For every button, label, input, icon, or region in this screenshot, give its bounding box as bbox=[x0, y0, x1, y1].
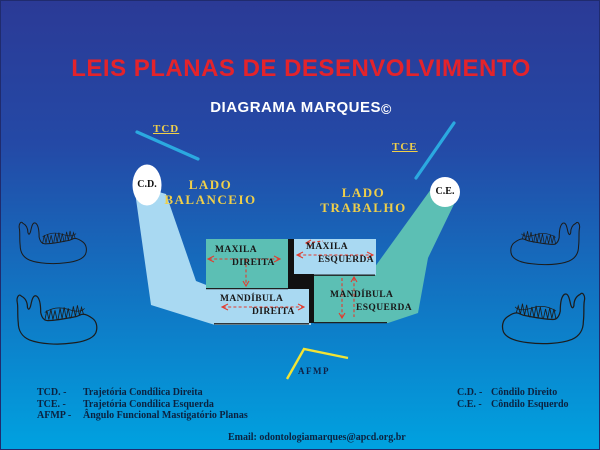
lado-trabalho-label: LADO TRABALHO bbox=[311, 185, 416, 215]
legend-ce-desc: Côndilo Esquerdo bbox=[491, 399, 569, 411]
maxila-direita-line1: MAXILA bbox=[206, 244, 288, 257]
mandibula-esquerda-line1: MANDÍBULA bbox=[314, 289, 418, 302]
maxila-direita-line2: DIREITA bbox=[206, 257, 288, 270]
ce-marker-label: C.E. bbox=[429, 186, 461, 197]
jaw-illustration-lower-left bbox=[17, 295, 97, 344]
maxila-esquerda-line2: ESQUERDA bbox=[294, 254, 377, 267]
subtitle-text: DIAGRAMA MARQUES bbox=[210, 99, 381, 116]
lado-balanceio-label: LADO BALANCEIO bbox=[158, 177, 263, 207]
mandibula-direita-line2: DIREITA bbox=[214, 306, 309, 319]
lado-trabalho-line1: LADO bbox=[311, 185, 416, 200]
tce-trajectory-line bbox=[416, 123, 454, 178]
afmp-label: AFMP bbox=[298, 366, 330, 376]
maxila-esquerda-label: MAXILA ESQUERDA bbox=[294, 241, 377, 267]
legend-tcd-desc: Trajetória Condílica Direita bbox=[83, 387, 203, 399]
cd-marker-label: C.D. bbox=[131, 179, 163, 190]
lado-balanceio-line2: BALANCEIO bbox=[158, 192, 263, 207]
legend-right: C.D. - Côndilo Direito C.E. - Côndilo Es… bbox=[457, 387, 569, 410]
legend-tce-abbr: TCE. - bbox=[37, 399, 83, 411]
legend-left: TCD. - Trajetória Condílica Direita TCE.… bbox=[37, 387, 248, 422]
legend-row-cd: C.D. - Côndilo Direito bbox=[457, 387, 569, 399]
legend-row-tce: TCE. - Trajetória Condílica Esquerda bbox=[37, 399, 248, 411]
mandibula-esquerda-label: MANDÍBULA ESQUERDA bbox=[314, 289, 418, 315]
legend-cd-abbr: C.D. - bbox=[457, 387, 491, 399]
legend-row-tcd: TCD. - Trajetória Condílica Direita bbox=[37, 387, 248, 399]
legend-tcd-abbr: TCD. - bbox=[37, 387, 83, 399]
lado-trabalho-line2: TRABALHO bbox=[311, 200, 416, 215]
legend-ce-abbr: C.E. - bbox=[457, 399, 491, 411]
maxila-direita-label: MAXILA DIREITA bbox=[206, 244, 288, 270]
legend-tce-desc: Trajetória Condílica Esquerda bbox=[83, 399, 214, 411]
jaw-illustration-upper-right bbox=[511, 222, 580, 264]
tce-label: TCE bbox=[392, 141, 418, 153]
mandibula-direita-label: MANDÍBULA DIREITA bbox=[214, 293, 309, 319]
copyright-symbol: © bbox=[381, 101, 392, 117]
slide-background: LEIS PLANAS DE DESENVOLVIMENTO DIAGRAMA … bbox=[0, 0, 600, 450]
legend-row-ce: C.E. - Côndilo Esquerdo bbox=[457, 399, 569, 411]
maxila-esquerda-line1: MAXILA bbox=[294, 241, 377, 254]
slide-title: LEIS PLANAS DE DESENVOLVIMENTO bbox=[1, 55, 600, 83]
legend-cd-desc: Côndilo Direito bbox=[491, 387, 557, 399]
legend-afmp-desc: Ângulo Funcional Mastigatório Planas bbox=[83, 410, 248, 422]
legend-afmp-abbr: AFMP - bbox=[37, 410, 83, 422]
lado-balanceio-line1: LADO bbox=[158, 177, 263, 192]
mandibula-esquerda-line2: ESQUERDA bbox=[314, 302, 418, 315]
email-label: Email: odontologiamarques@apcd.org.br bbox=[228, 432, 406, 443]
legend-row-afmp: AFMP - Ângulo Funcional Mastigatório Pla… bbox=[37, 410, 248, 422]
tcd-label: TCD bbox=[153, 123, 179, 135]
slide-subtitle: DIAGRAMA MARQUES© bbox=[1, 99, 600, 117]
jaw-illustration-upper-left bbox=[19, 222, 86, 263]
tcd-trajectory-line bbox=[137, 132, 198, 159]
jaw-illustration-lower-right bbox=[503, 293, 585, 343]
mandibula-direita-line1: MANDÍBULA bbox=[214, 293, 309, 306]
